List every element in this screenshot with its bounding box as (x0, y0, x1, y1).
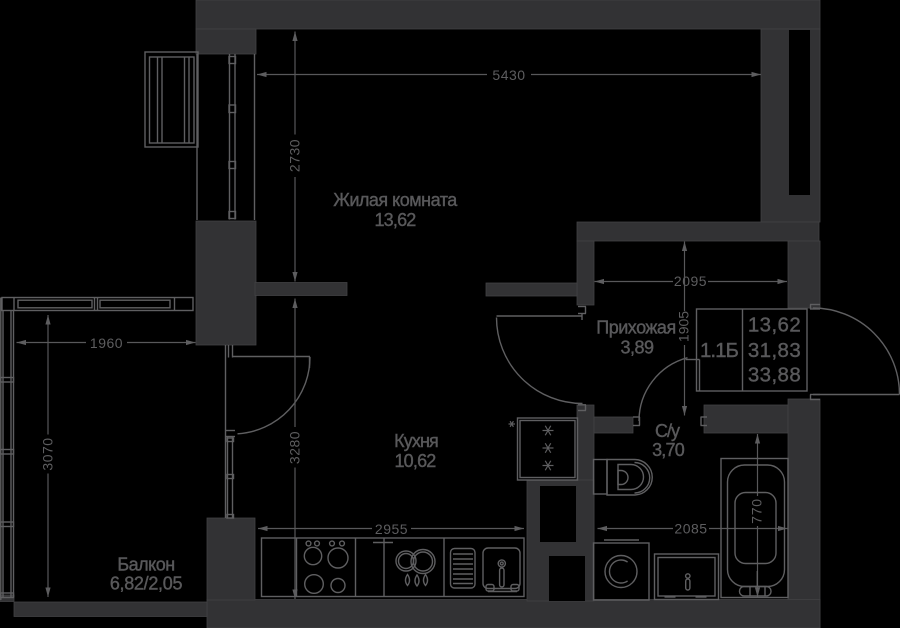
svg-text:3,70: 3,70 (652, 440, 685, 460)
svg-text:2730: 2730 (287, 139, 303, 172)
svg-text:2085: 2085 (674, 521, 707, 537)
svg-text:6,82/2,05: 6,82/2,05 (110, 574, 183, 594)
svg-text:5430: 5430 (492, 67, 525, 83)
svg-text:Прихожая: Прихожая (596, 318, 675, 338)
svg-text:3,89: 3,89 (620, 338, 654, 358)
svg-text:1960: 1960 (90, 335, 123, 351)
svg-text:10,62: 10,62 (394, 451, 436, 471)
svg-text:2095: 2095 (674, 273, 707, 289)
svg-text:1.1Б: 1.1Б (700, 339, 738, 362)
svg-text:13,62: 13,62 (748, 314, 801, 337)
svg-text:13,62: 13,62 (374, 210, 416, 230)
svg-text:770: 770 (749, 498, 765, 524)
svg-text:1905: 1905 (676, 311, 692, 342)
svg-text:Жилая комната: Жилая комната (333, 190, 458, 210)
svg-text:3070: 3070 (40, 437, 56, 470)
svg-text:Балкон: Балкон (117, 555, 174, 575)
svg-text:33,88: 33,88 (748, 364, 801, 387)
svg-text:31,83: 31,83 (748, 339, 801, 362)
svg-text:2955: 2955 (375, 521, 408, 537)
svg-text:Кухня: Кухня (394, 431, 438, 451)
svg-text:С/у: С/у (655, 421, 680, 441)
svg-text:3280: 3280 (287, 431, 303, 464)
